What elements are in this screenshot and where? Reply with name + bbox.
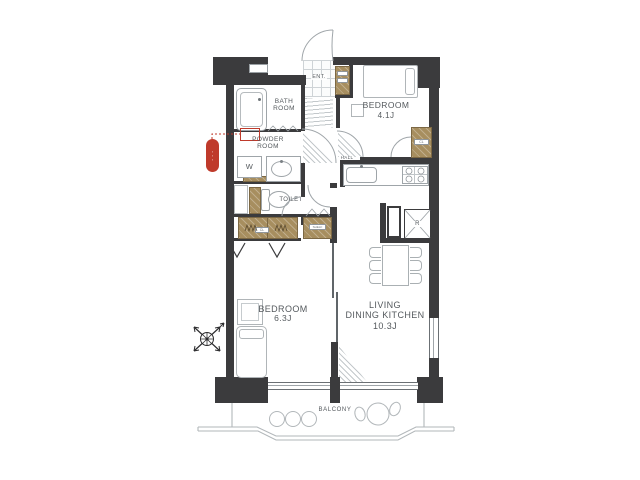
wall-hall-bedroom1 (336, 98, 340, 128)
pillow-bedroom1 (405, 68, 415, 95)
wall-bath-top (266, 75, 306, 85)
wall-right-upper (429, 88, 439, 318)
dining-chair (410, 247, 422, 258)
pillow-bedroom2 (239, 329, 264, 339)
bedroom2-label: BEDROOM 6.3J (258, 304, 308, 324)
bath-drain (258, 98, 261, 101)
bedroom1-closet-door-arc (391, 137, 411, 157)
shoe-cabinet-label-2 (337, 78, 348, 83)
annotation-badge-text: ・・・ (210, 150, 216, 162)
powder-door-swing-hatch (303, 131, 336, 163)
bedroom1-name: BEDROOM (358, 101, 414, 111)
sliding-door-panel-1 (332, 243, 334, 298)
wall-fridge-nook-left (380, 203, 386, 243)
entrance-door-arc (302, 30, 333, 61)
dining-chair (369, 260, 381, 271)
ldk-label-line1: LIVING (345, 300, 425, 310)
desk-bedroom2-inner (241, 303, 259, 321)
toilet-label: TOILET (276, 197, 306, 204)
wall-top-right (333, 57, 419, 65)
ldk-label: LIVING DINING KITCHEN 10.3J (345, 300, 425, 331)
annotation-badge: ・・・ (206, 139, 219, 172)
ldk-size: 10.3J (345, 321, 425, 331)
dining-table (382, 245, 409, 286)
toilet-cabinet (249, 187, 261, 214)
wall-hall-ldk-a (330, 183, 337, 188)
bedroom1-closet-label: CL (414, 139, 429, 145)
entrance-label-text: ENT. (311, 74, 327, 80)
bedroom2-size: 6.3J (258, 314, 308, 324)
bathroom-label: BATH ROOM (266, 98, 302, 113)
sliding-door-panel-2 (336, 292, 338, 342)
dining-chair (410, 273, 422, 284)
refrigerator-label: R (414, 221, 421, 228)
balcony-label: BALCONY (317, 407, 353, 414)
powder-label-line2: ROOM (248, 143, 288, 150)
hall-ldk-door-arc (308, 185, 330, 207)
kitchen-sink (346, 167, 377, 183)
window-right-wall-line (433, 318, 434, 358)
dining-chair (369, 247, 381, 258)
entrance-step-hatch (304, 98, 333, 128)
fridge-nook-cabinet (387, 206, 401, 238)
bathroom-label-line1: BATH (266, 98, 302, 105)
shoe-cabinet-label-1 (337, 71, 348, 76)
stove (402, 166, 428, 184)
wall-hall-west-b (301, 163, 305, 197)
bedroom1-door-swing-hatch (338, 129, 363, 157)
bathroom-label-line2: ROOM (266, 105, 302, 112)
balcony-table-set (353, 401, 402, 425)
window-bedroom2-balcony (268, 382, 330, 390)
meter-box-label (249, 64, 268, 73)
bedroom1-size: 4.1J (358, 111, 414, 120)
wall-topright-block (415, 57, 440, 88)
refrigerator-space: R (404, 209, 431, 239)
window-ldk-balcony (340, 382, 418, 390)
washbasin-tap (280, 160, 283, 163)
window-bedroom2-line (268, 385, 330, 386)
washbasin-bowl (271, 161, 292, 177)
dining-chair (369, 273, 381, 284)
entrance-label: ENT. (305, 73, 333, 81)
floor-v-mark-2 (269, 243, 285, 257)
wall-bedroom2-ldk (331, 342, 338, 378)
wall-bottomright-block (417, 377, 443, 403)
hall-shelf-label: SHELF (309, 224, 326, 230)
bedroom1-label: BEDROOM 4.1J (358, 101, 414, 120)
window-right-wall (429, 318, 439, 358)
stove-divider-v (414, 167, 415, 183)
powder-room-label: POWDER ROOM (248, 136, 288, 151)
ldk-label-line2: DINING KITCHEN (345, 310, 425, 320)
wall-bottom-center-stub (330, 377, 340, 403)
washer-label: W (246, 163, 253, 172)
bedroom2-closet-label: CL (255, 227, 269, 233)
toilet-side-cabinet (234, 185, 248, 214)
window-ldk-line (340, 385, 418, 386)
stove-divider-h (403, 174, 427, 175)
washing-machine-space: W (237, 156, 262, 178)
wall-bottomleft-block (215, 377, 268, 403)
hall-label: HALL (338, 155, 356, 160)
balcony-planters (270, 412, 317, 427)
dining-chair (410, 260, 422, 271)
ldk-corner-hatch (339, 346, 367, 382)
powder-label-line1: POWDER (248, 136, 288, 143)
compass-icon (194, 323, 224, 351)
floor-plan: CL CL SHELF W R ・・・ ENT. B (0, 0, 640, 480)
kitchen-tap (360, 165, 363, 168)
